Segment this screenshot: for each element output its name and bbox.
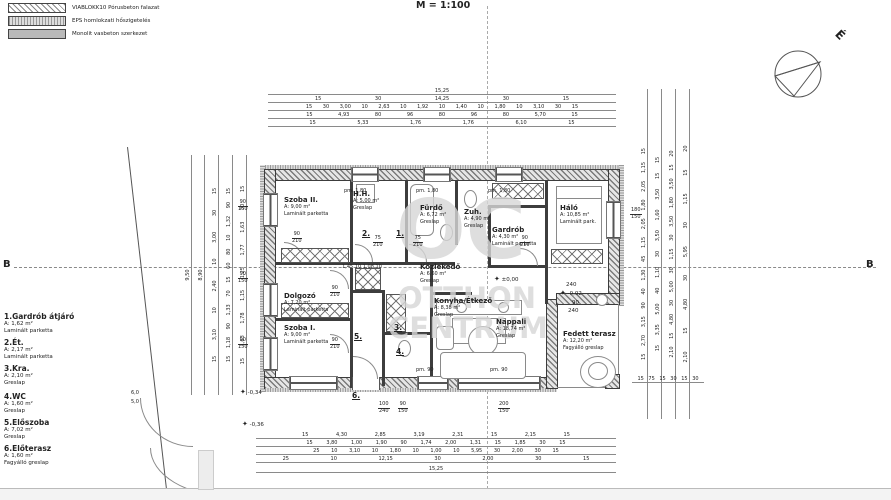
dim-bottom-2: 15 3,80 1,00 1,90 90 1,74 2,00 1,31 15 1… <box>256 440 616 447</box>
wardrobe <box>281 248 349 263</box>
room-label-zuh: Zuh. A: 4,90 m² Greslap <box>464 208 490 229</box>
door-swing <box>355 244 373 262</box>
entrance-door-swing <box>353 356 378 379</box>
dim-right-3: 2,10 15 4,80 30 5,00 30 1,15 30 3,50 1,8… <box>669 89 676 419</box>
room-number-2: 2. <box>362 229 370 238</box>
window <box>496 168 522 181</box>
level-marker-zero: ✦ ±0,00 <box>494 275 518 283</box>
room-list-item-1: 1.Gardrób átjáró A: 1,62 m² Laminált par… <box>4 312 74 335</box>
room-number-5: 5. <box>354 332 362 341</box>
bed-pillow <box>556 186 602 199</box>
window <box>352 168 378 181</box>
north-arrow-icon <box>772 44 828 100</box>
dim-bottom-3: 25 10 3,10 10 1,80 10 1,00 10 5,95 30 2,… <box>256 448 616 455</box>
road-strip <box>0 489 891 500</box>
room-label-kozlekedo: Közlekedő A: 6,60 m² Greslap <box>420 263 460 284</box>
window-size: 90150 <box>398 402 408 414</box>
room-list-item-3: 3.Kra. A: 2,10 m² Greslap <box>4 364 33 387</box>
legend-label: EPS homlokzati hőszigetelés <box>72 18 150 24</box>
room-number-1: 1. <box>396 229 404 238</box>
level-icon: ✦ <box>560 289 566 297</box>
room-list-item-5: 5.Előszoba A: 7,02 m² Greslap <box>4 418 49 441</box>
legend-label: VIABLOKK10 Pórusbeton falazat <box>72 5 159 11</box>
concrete-swatch-icon <box>8 29 66 39</box>
terrace-plant-inner <box>588 362 608 380</box>
window <box>607 202 620 238</box>
dim-bottom-5: 15,25 <box>256 466 616 473</box>
masonry-swatch-icon <box>8 3 66 13</box>
dim-top-4: 15 4,93 80 96 80 96 80 5,70 15 <box>268 112 616 119</box>
window <box>264 338 277 370</box>
dim-top-1: 15,25 <box>268 88 616 95</box>
level-marker-034: ✦ -0,34 <box>240 388 262 396</box>
dim-bottom-4: 25 10 12,15 30 2,00 30 15 <box>256 456 616 463</box>
gate-arc <box>140 398 193 447</box>
partition <box>545 180 548 304</box>
room-list-item-6: 6.Előterasz A: 1,60 m² Fagyálló greslap <box>4 444 51 467</box>
door-size: 90210 <box>330 338 340 350</box>
level-icon: ✦ <box>240 388 246 396</box>
window-size: 180150 <box>630 208 642 220</box>
dim-bottom-1: 15 4,30 2,85 3,19 2,31 15 2,15 15 <box>256 432 616 439</box>
room-number-3: 3. <box>394 323 402 332</box>
wardrobe <box>355 268 381 290</box>
room-list-item-4: 4.WC A: 1,60 m² Greslap <box>4 392 33 415</box>
room-label-szoba1: Szoba I. A: 9,00 m² Laminált parketta <box>284 324 328 345</box>
door-size: 90210 <box>330 286 340 298</box>
partition <box>382 290 385 386</box>
parapet-90-label: 90 <box>572 300 579 306</box>
legend-row-concrete: Monolit vasbeton szerkezet <box>8 29 147 39</box>
parapet-label: pm. 90 <box>416 367 434 373</box>
dim-left-4: 15 1,18 90 1,33 70 15 60 80 10 1,32 90 1… <box>226 155 233 395</box>
living-terrace-wall <box>547 300 557 388</box>
downspout <box>596 294 608 306</box>
window <box>264 194 277 226</box>
dim-top-5: 15 5,33 1,76 1,76 6,10 15 <box>268 120 616 127</box>
parapet-label: pm. 90 <box>490 367 508 373</box>
room-label-dolgozo: Dolgozó A: 7,20 m² Laminált parketta <box>284 292 328 313</box>
window-size: 90150 <box>238 338 248 350</box>
dim-left-1: 9,50 <box>185 155 192 395</box>
floor-plan-sheet: VIABLOKK10 Pórusbeton falazat EPS homlok… <box>0 0 891 500</box>
gate-width-label: 6,0 <box>131 390 139 396</box>
room-list-item-2: 2.Ét. A: 2,17 m² Laminált parketta <box>4 338 53 361</box>
door-size: 90210 <box>292 232 302 244</box>
dim-left-3: 15 3,10 10 2,40 10 3,00 30 15 <box>212 155 219 395</box>
legend-row-masonry: VIABLOKK10 Pórusbeton falazat <box>8 3 159 13</box>
room-label-nappali: Nappali A: 18,74 m² Greslap <box>496 318 526 339</box>
level-icon: ✦ <box>494 275 500 283</box>
gate-width-label: 5,0 <box>131 399 139 405</box>
parapet-label: pm. 1,80 <box>344 188 366 194</box>
room-label-konyha: Konyha/Étkező A: 8,38 m² Greslap <box>434 297 492 318</box>
entrance-door-size: 100240 <box>378 402 390 414</box>
room-number-6: 6. <box>352 391 360 400</box>
dim-left-2: 8,90 <box>198 155 205 395</box>
dim-right-small: 15 75 15 30 15 30 <box>632 376 704 383</box>
door-size: 75210 <box>373 236 383 248</box>
window-size: 90150 <box>238 200 248 212</box>
door-size: 90210 <box>520 236 530 248</box>
dim-right-4: 2,10 15 4,80 30 5,95 30 1,15 15 20 <box>683 89 690 419</box>
level-icon: ✦ <box>242 420 248 428</box>
window <box>290 377 337 389</box>
parapet-label: pm. 1,80 <box>488 188 510 194</box>
legend-row-eps: EPS homlokzati hőszigetelés <box>8 16 150 26</box>
wardrobe <box>551 249 603 264</box>
window-size: 90150 <box>238 272 248 284</box>
room-label-halo: Háló A: 10,85 m² Laminált park. <box>560 204 596 225</box>
window <box>424 168 450 181</box>
room-label-terasz: Fedett terasz A: 12,20 m² Fagyálló gresl… <box>563 330 616 351</box>
window <box>264 284 277 316</box>
parapet-label: pm. 1,80 <box>416 188 438 194</box>
north-label: É <box>832 27 848 43</box>
level-marker-036: ✦ -0,36 <box>242 420 264 428</box>
dim-right-2: 15 3,35 5,00 40 1,10 30 3,50 1,60 3,50 1… <box>655 89 662 419</box>
dim-top-3: 15 30 3,00 10 2,63 10 1,92 10 1,40 10 1,… <box>268 104 616 111</box>
dim-top-2: 15 30 14,25 30 15 <box>268 96 616 103</box>
level-marker-terrace: ✦ -0,02 <box>560 289 582 297</box>
dim-right-1: 15 2,70 3,15 90 40 1,30 45 1,15 2,05 1,8… <box>641 89 648 419</box>
lintel-label: 240 <box>566 282 577 288</box>
window-size: 200150 <box>498 402 510 414</box>
eps-swatch-icon <box>8 16 66 26</box>
door-size: 75210 <box>413 236 423 248</box>
legend-label: Monolit vasbeton szerkezet <box>72 31 147 37</box>
partition <box>353 290 385 293</box>
section-marker-right: B <box>866 259 874 270</box>
scale-title: M = 1:100 <box>416 0 470 11</box>
room-label-furdo: Fürdő A: 6,72 m² Greslap <box>420 204 446 225</box>
room-label-szoba2: Szoba II. A: 9,00 m² Laminált parketta <box>284 196 328 217</box>
lintel-label: 240 <box>568 308 579 314</box>
room-number-4: 4. <box>396 347 404 356</box>
section-marker-left: B <box>3 259 11 270</box>
sofa <box>440 352 526 379</box>
room-label-gardrob: Gardrób A: 4,30 m² Laminált parketta <box>492 226 536 247</box>
driveway-post <box>198 450 214 490</box>
site-boundary-line <box>127 147 168 497</box>
partition <box>275 318 353 321</box>
